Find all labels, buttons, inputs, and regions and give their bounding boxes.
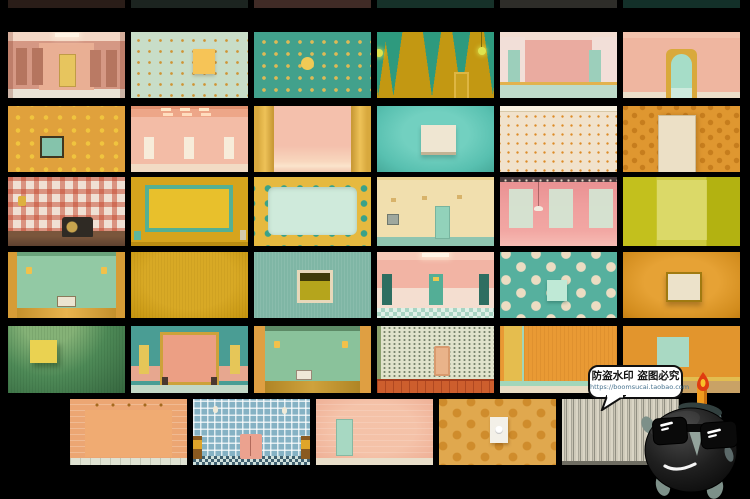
wall-niche: [434, 346, 450, 376]
thumb-r6c2-gingham-room[interactable]: [193, 399, 310, 465]
mint-doors: [508, 50, 520, 82]
side-walls: [254, 326, 265, 393]
thumb-r2c5-minidots[interactable]: [500, 106, 617, 172]
thumb-r4c3-olive-window[interactable]: [254, 252, 371, 318]
cropped-thumbnail-sliver: [131, 0, 248, 8]
cropped-top-row: [8, 0, 740, 8]
thumb-r2c3-stage-wall[interactable]: [254, 106, 371, 172]
arch-doorway: [671, 54, 692, 98]
speakers: [162, 377, 168, 385]
gallery-row-6: [70, 399, 679, 465]
thumb-r5c4-dotted-room[interactable]: [377, 326, 494, 393]
thumb-r1c1-pink-hallway[interactable]: [8, 32, 125, 98]
thumb-r2c2-tiled-room[interactable]: [131, 106, 248, 172]
side-doors: [16, 48, 27, 85]
gallery-row-4: [8, 252, 740, 318]
thumb-r5c3-green-room[interactable]: [254, 326, 371, 393]
cream-door: [658, 115, 696, 172]
hanging-bulb: [478, 47, 486, 55]
radio: [62, 217, 93, 237]
thumb-r4c6-orange-window[interactable]: [623, 252, 740, 318]
thumb-r3c4-mint-door[interactable]: [377, 177, 494, 246]
yellow-canvas: [30, 340, 57, 363]
yellow-door: [59, 54, 76, 87]
cropped-thumbnail-sliver: [500, 0, 617, 8]
yellow-doors: [139, 345, 149, 374]
wall-lamp: [18, 196, 26, 206]
radio: [296, 370, 312, 380]
thumb-r6c4-doorbell[interactable]: [439, 399, 556, 465]
watermark-text: 防盗水印 盗图必究: [590, 370, 681, 383]
mint-screen: [268, 187, 357, 235]
yellow-poster: [193, 49, 215, 74]
watermark-url: https://boomsucai.taobao.com: [590, 383, 681, 392]
thumb-r6c3-peach-room[interactable]: [316, 399, 433, 465]
doorbell-plate: [490, 417, 508, 443]
thumb-r1c5-pink-room[interactable]: [500, 32, 617, 98]
window: [297, 270, 333, 303]
gallery-row-3: [8, 177, 740, 246]
pink-cabinet: [240, 434, 262, 459]
gallery-row-1: [8, 32, 740, 98]
window-frame: [666, 272, 702, 302]
cream-doors: [144, 137, 154, 159]
thumb-r3c5-mint-panels[interactable]: [500, 177, 617, 246]
thumb-r5c1-green-canvas[interactable]: [8, 326, 125, 393]
picture-frame: [40, 136, 64, 158]
chair: [301, 436, 310, 459]
noticeboard: [145, 185, 233, 232]
thumb-r3c1-gingham-radio[interactable]: [8, 177, 125, 246]
radio: [57, 296, 76, 307]
side-doors: [382, 274, 392, 305]
thumb-r2c6-dots-door[interactable]: [623, 106, 740, 172]
wall-sconces: [213, 406, 218, 413]
center-door: [429, 274, 443, 305]
cropped-thumbnail-sliver: [377, 0, 494, 8]
thumb-r1c3-teal-dots[interactable]: [254, 32, 371, 98]
bubble-tail: [600, 395, 626, 411]
thumb-r1c4-pennants[interactable]: [377, 32, 494, 98]
screenshot-root: 防盗水印 盗图必究 https://boomsucai.taobao.com: [0, 0, 750, 499]
mint-door: [336, 419, 353, 456]
thumb-r1c6-arch-doorway[interactable]: [623, 32, 740, 98]
side-walls: [8, 252, 17, 318]
thumb-r2c1-dots-picture[interactable]: [8, 106, 125, 172]
cropped-thumbnail-sliver: [254, 0, 371, 8]
hanging-mobile: [538, 182, 539, 206]
back-wall: [85, 410, 172, 457]
thumb-r2c4-teal-frame[interactable]: [377, 106, 494, 172]
center-panel: [657, 180, 707, 240]
thumb-r6c1-cloakroom[interactable]: [70, 399, 187, 465]
thumb-r5c2-peach-alcove[interactable]: [131, 326, 248, 393]
wall-lamps: [274, 341, 280, 348]
thumb-r1c2-mint-dots[interactable]: [131, 32, 248, 98]
watermark-bubble: 防盗水印 盗图必究 https://boomsucai.taobao.com: [588, 365, 683, 399]
thumb-r4c5-polka-square[interactable]: [500, 252, 617, 318]
wall-lamps: [26, 267, 32, 274]
cropped-thumbnail-sliver: [623, 0, 740, 8]
chair: [193, 436, 202, 459]
mint-panel: [657, 337, 689, 367]
stage-alcove: [160, 332, 219, 385]
thumb-r3c6-chartreuse[interactable]: [623, 177, 740, 246]
hook-strip: [87, 400, 169, 409]
small-door: [454, 72, 469, 98]
mint-door: [435, 206, 450, 239]
wall-box: [387, 214, 399, 225]
wall-panels: [509, 189, 533, 228]
thumb-r3c3-mint-screen[interactable]: [254, 177, 371, 246]
gallery-row-2: [8, 106, 740, 172]
light-switch: [240, 230, 246, 240]
thumb-r4c2-mustard-wall[interactable]: [131, 252, 248, 318]
mint-square: [547, 280, 567, 301]
yellow-door: [504, 326, 524, 381]
cropped-thumbnail-sliver: [8, 0, 125, 8]
thumb-r4c4-pink-corridor[interactable]: [377, 252, 494, 318]
thumb-r3c2-noticeboard[interactable]: [131, 177, 248, 246]
light-switch: [134, 231, 141, 240]
big-dot: [301, 57, 314, 70]
hanging-bulb: [377, 49, 383, 57]
blank-frame: [421, 125, 456, 155]
thumb-r4c1-mint-room[interactable]: [8, 252, 125, 318]
